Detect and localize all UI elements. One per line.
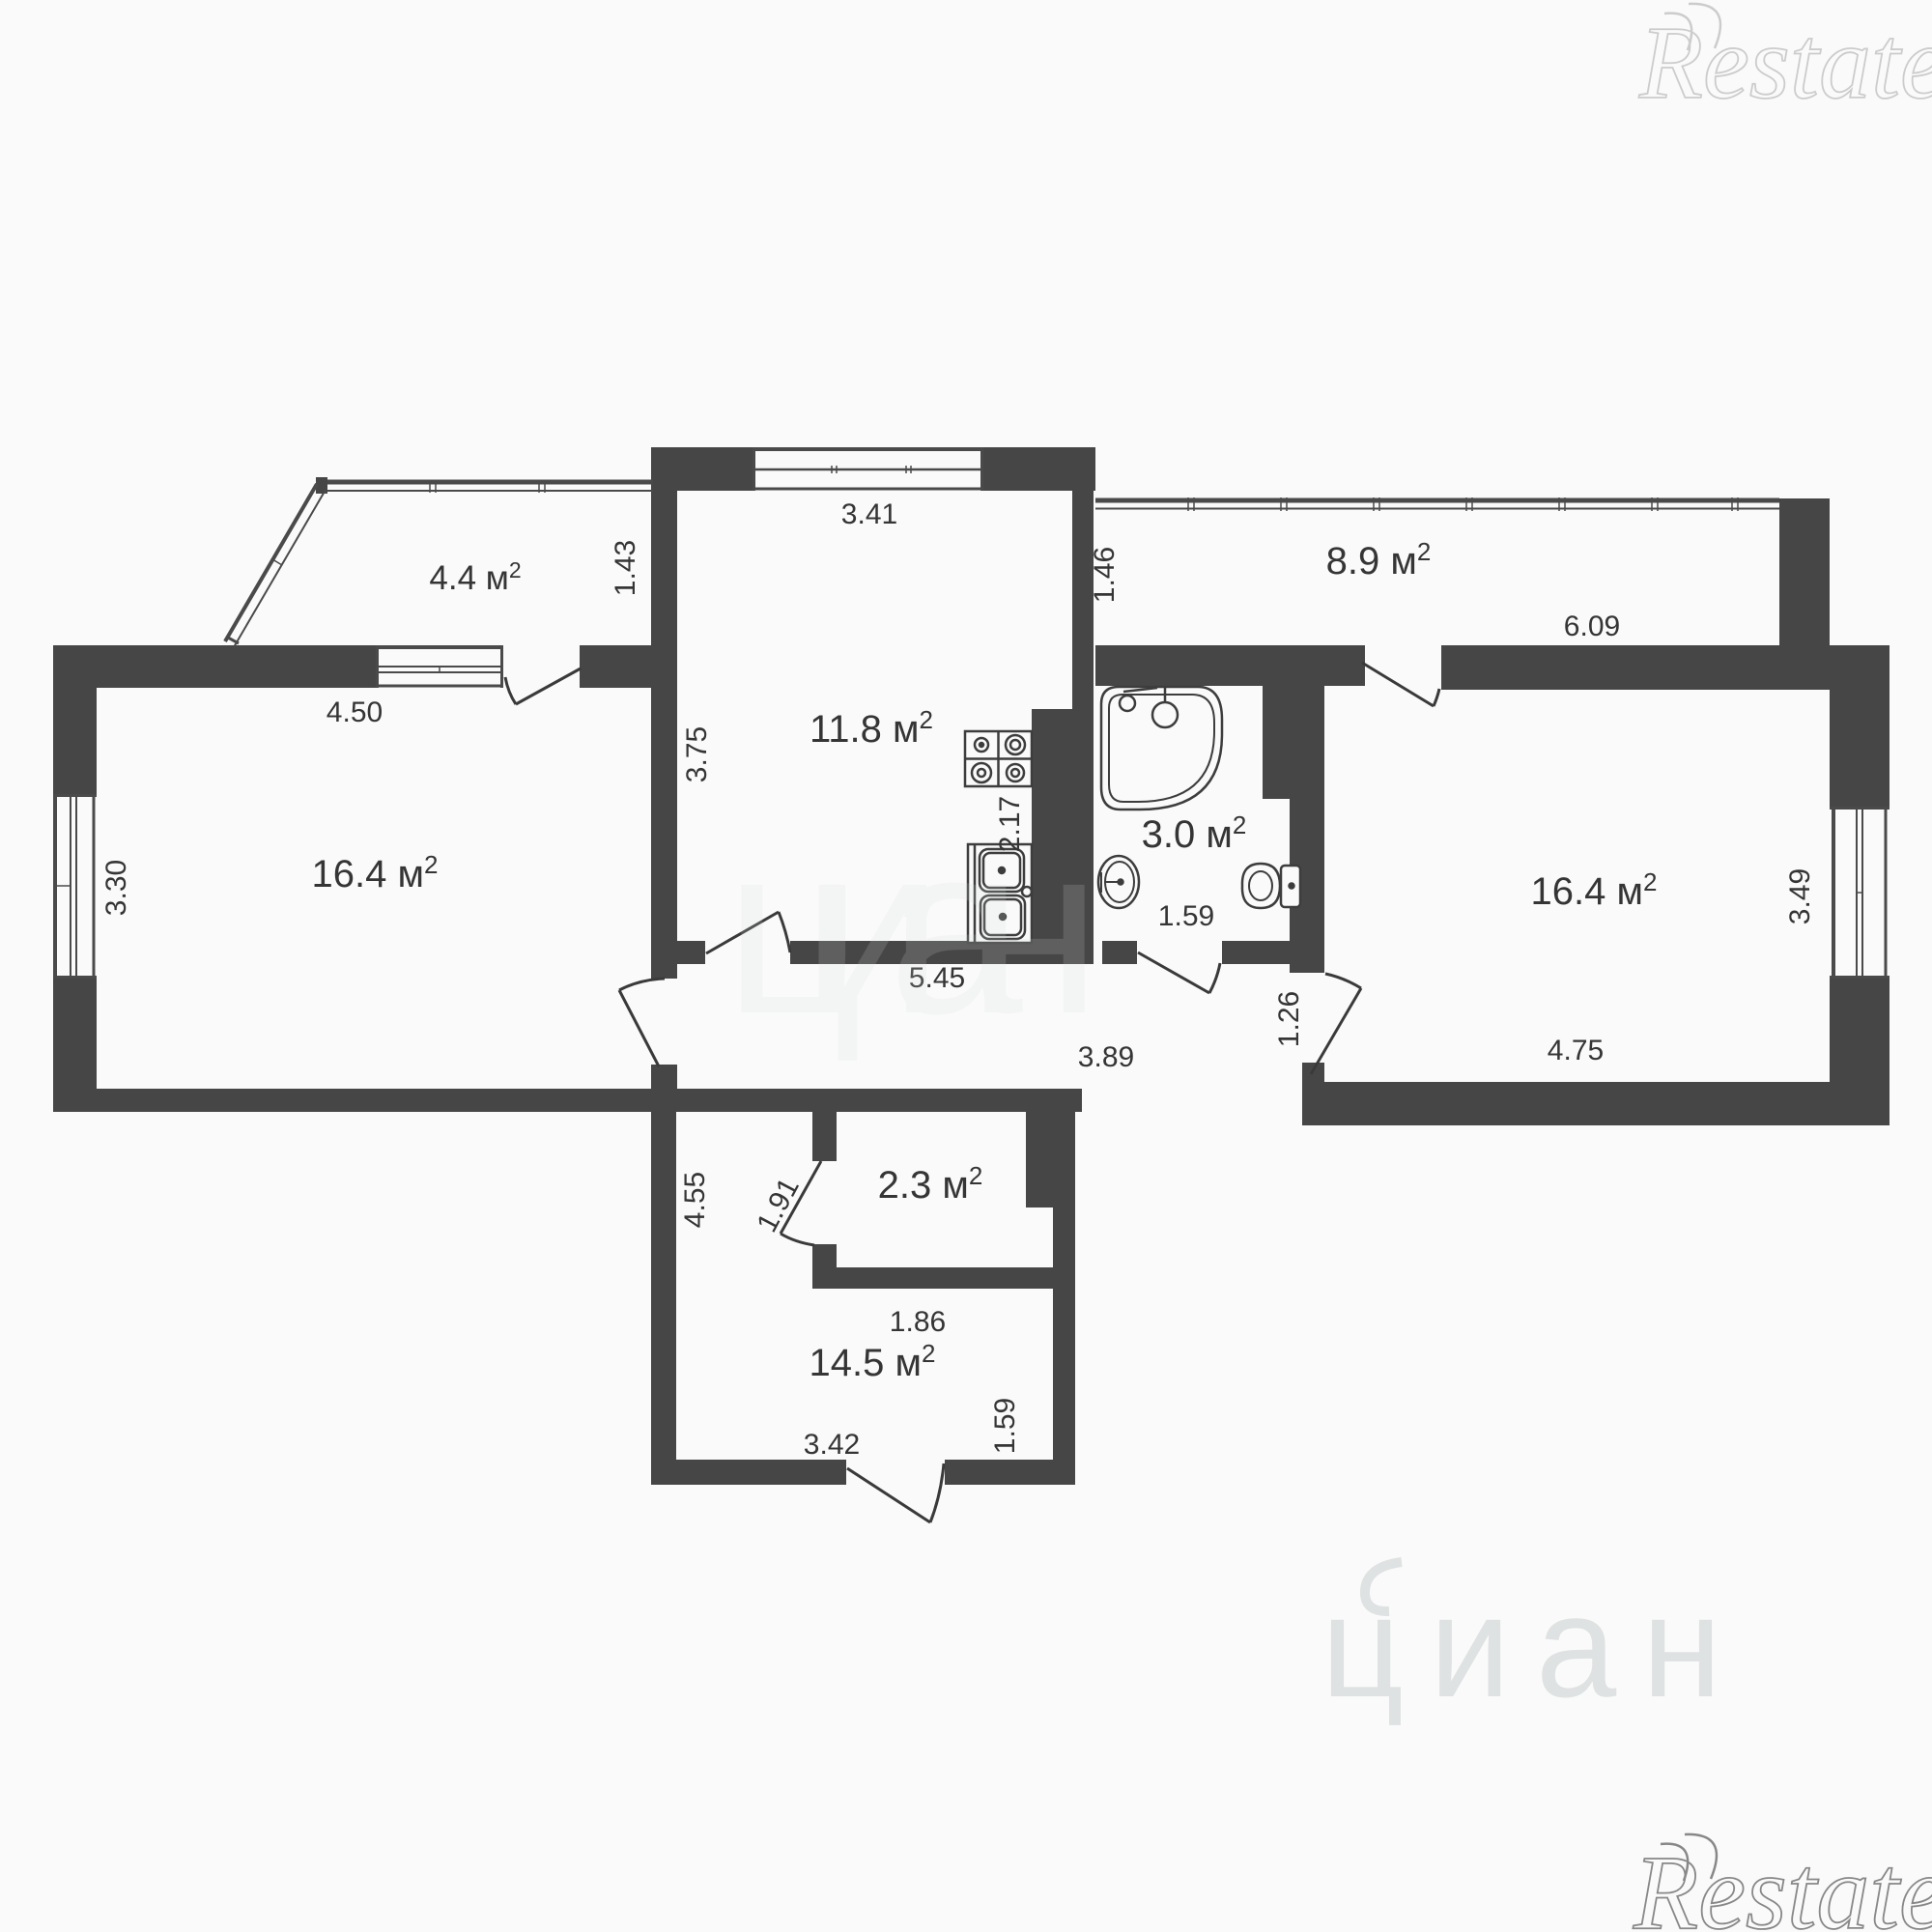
svg-text:3.0 м2: 3.0 м2 <box>1142 810 1247 856</box>
svg-text:1.43: 1.43 <box>610 540 641 596</box>
svg-text:1.26: 1.26 <box>1273 991 1305 1047</box>
svg-text:6.09: 6.09 <box>1564 611 1620 642</box>
svg-text:11.8 м2: 11.8 м2 <box>810 705 933 751</box>
svg-text:2.3 м2: 2.3 м2 <box>878 1161 983 1207</box>
svg-text:3.41: 3.41 <box>841 498 897 530</box>
svg-text:1.46: 1.46 <box>1089 547 1121 603</box>
svg-text:1.59: 1.59 <box>1158 900 1214 932</box>
svg-text:3.75: 3.75 <box>681 726 713 782</box>
svg-text:3.49: 3.49 <box>1784 868 1816 924</box>
svg-text:8.9 м2: 8.9 м2 <box>1326 537 1432 582</box>
svg-text:14.5 м2: 14.5 м2 <box>810 1339 936 1384</box>
svg-text:циан: циан <box>724 794 1101 1064</box>
svg-text:16.4 м2: 16.4 м2 <box>312 850 439 895</box>
svg-text:16.4 м2: 16.4 м2 <box>1531 867 1658 913</box>
svg-text:4.4 м2: 4.4 м2 <box>429 557 521 597</box>
svg-text:4.50: 4.50 <box>327 696 383 728</box>
svg-text:3.30: 3.30 <box>100 860 132 916</box>
svg-text:Restate: Restate <box>1638 6 1932 121</box>
svg-text:4.55: 4.55 <box>679 1172 711 1228</box>
svg-text:Restate: Restate <box>1633 1833 1932 1932</box>
svg-text:1.86: 1.86 <box>890 1306 946 1338</box>
svg-text:1.59: 1.59 <box>989 1398 1021 1454</box>
svg-text:4.75: 4.75 <box>1548 1035 1604 1066</box>
svg-text:3.42: 3.42 <box>804 1429 860 1461</box>
